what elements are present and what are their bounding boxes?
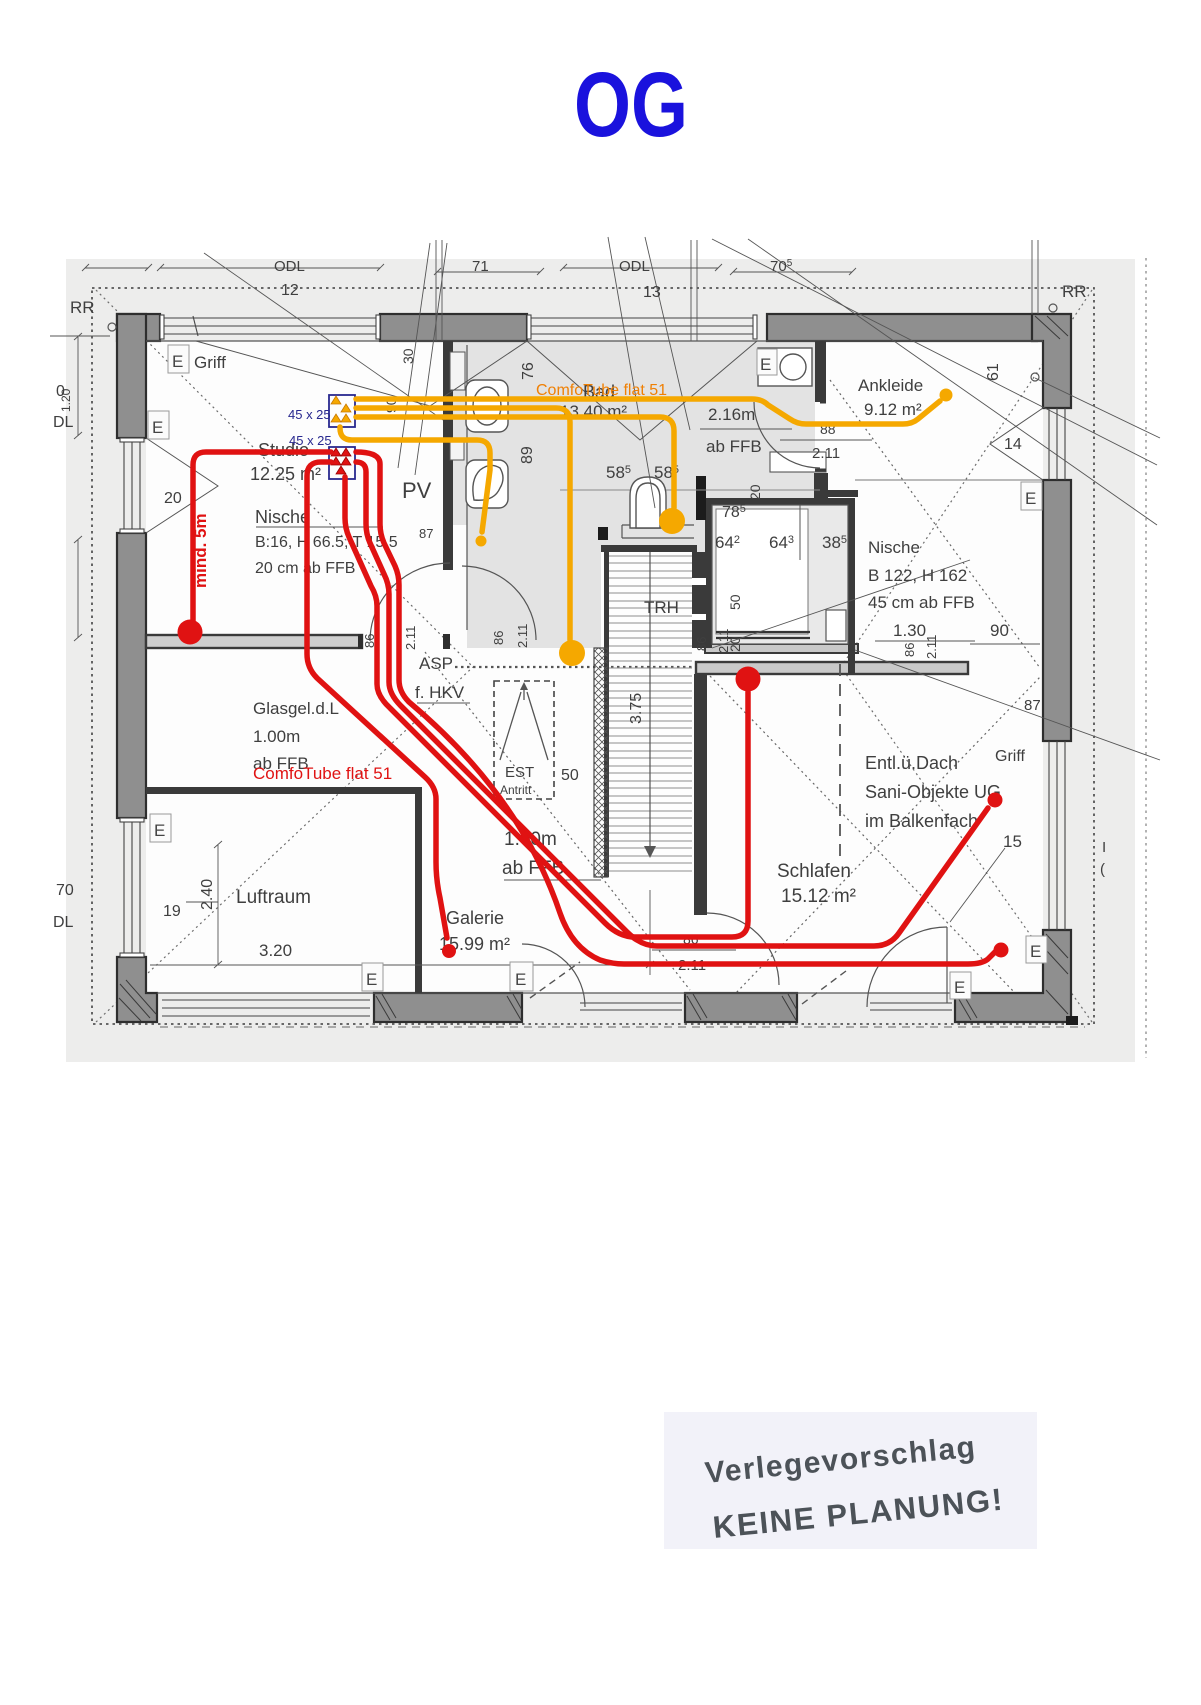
svg-text:50: 50 — [727, 594, 743, 610]
svg-text:30: 30 — [400, 348, 416, 364]
svg-text:15.12 m²: 15.12 m² — [781, 886, 856, 907]
svg-text:12: 12 — [281, 282, 299, 299]
svg-text:E: E — [366, 970, 377, 989]
svg-text:Antritt: Antritt — [500, 783, 532, 797]
svg-text:45 x 25: 45 x 25 — [289, 433, 332, 448]
svg-text:E: E — [760, 355, 771, 374]
svg-text:ComfoTube flat 51: ComfoTube flat 51 — [536, 382, 667, 399]
svg-text:OG: OG — [574, 54, 688, 156]
svg-text:1.30: 1.30 — [893, 621, 926, 640]
svg-text:RR: RR — [70, 298, 95, 317]
svg-text:Griff: Griff — [995, 748, 1025, 765]
svg-text:2.11: 2.11 — [812, 445, 840, 462]
svg-text:E: E — [1025, 489, 1036, 508]
svg-text:19: 19 — [163, 903, 181, 920]
svg-text:DL: DL — [53, 914, 74, 931]
svg-text:3.20: 3.20 — [259, 941, 292, 960]
svg-text:13: 13 — [643, 284, 661, 301]
svg-text:20: 20 — [727, 636, 743, 652]
svg-text:TRH: TRH — [644, 598, 679, 617]
svg-text:20: 20 — [164, 490, 182, 507]
svg-text:14: 14 — [1004, 436, 1022, 453]
svg-text:86: 86 — [902, 643, 917, 657]
svg-text:DL: DL — [53, 414, 74, 431]
svg-text:71: 71 — [472, 258, 489, 275]
svg-text:E: E — [515, 970, 526, 989]
svg-text:E: E — [172, 352, 183, 371]
svg-text:B 122, H 162: B 122, H 162 — [868, 566, 967, 585]
svg-text:Sani-Objekte UG: Sani-Objekte UG — [865, 782, 1001, 802]
svg-text:(: ( — [1100, 861, 1105, 878]
svg-text:Nische: Nische — [868, 538, 920, 557]
svg-text:3.75: 3.75 — [628, 693, 645, 724]
svg-text:61: 61 — [985, 363, 1002, 381]
svg-text:Griff: Griff — [194, 353, 226, 372]
svg-text:Luftraum: Luftraum — [236, 887, 311, 908]
svg-text:86: 86 — [694, 637, 709, 651]
svg-text:Schlafen: Schlafen — [777, 861, 851, 882]
svg-text:Ankleide: Ankleide — [858, 376, 923, 395]
svg-text:2.40: 2.40 — [199, 879, 216, 910]
svg-text:Glasgel.d.L: Glasgel.d.L — [253, 699, 339, 718]
svg-text:45 x 25: 45 x 25 — [288, 407, 331, 422]
svg-text:ComfoTube flat 51: ComfoTube flat 51 — [253, 764, 392, 783]
svg-text:im Balkenfach: im Balkenfach — [865, 811, 978, 831]
svg-text:mind. 5m: mind. 5m — [191, 513, 210, 588]
svg-text:86: 86 — [491, 631, 506, 645]
svg-text:Nische: Nische — [255, 507, 310, 527]
svg-text:EST: EST — [505, 764, 534, 781]
svg-text:I: I — [1102, 839, 1106, 856]
svg-text:90: 90 — [990, 621, 1009, 640]
svg-text:2.11: 2.11 — [403, 626, 418, 650]
svg-text:45 cm ab FFB: 45 cm ab FFB — [868, 593, 975, 612]
svg-text:RR: RR — [1062, 282, 1087, 301]
svg-text:Galerie: Galerie — [446, 908, 504, 928]
svg-text:9.12 m²: 9.12 m² — [864, 400, 922, 419]
svg-text:87: 87 — [1024, 697, 1041, 714]
svg-text:20: 20 — [747, 484, 763, 500]
svg-text:89: 89 — [519, 446, 536, 464]
svg-text:E: E — [1030, 942, 1041, 961]
svg-text:Entl.ü.Dach: Entl.ü.Dach — [865, 753, 958, 773]
svg-text:2.11: 2.11 — [924, 635, 939, 659]
svg-text:87: 87 — [419, 526, 433, 541]
svg-text:B:16, H 66.5, T 15.5: B:16, H 66.5, T 15.5 — [255, 534, 398, 551]
svg-text:PV: PV — [402, 478, 432, 503]
svg-text:E: E — [954, 978, 965, 997]
svg-text:ODL: ODL — [274, 258, 305, 275]
svg-text:2.11: 2.11 — [515, 624, 530, 648]
svg-text:1.20: 1.20 — [59, 388, 73, 412]
svg-text:ODL: ODL — [619, 258, 650, 275]
svg-text:76: 76 — [520, 362, 537, 380]
svg-text:1.00m: 1.00m — [253, 727, 300, 746]
svg-text:ASP: ASP — [419, 654, 453, 673]
svg-text:50: 50 — [561, 767, 579, 784]
svg-text:f. HKV: f. HKV — [415, 683, 465, 702]
svg-text:2.16m: 2.16m — [708, 405, 755, 424]
svg-text:E: E — [152, 418, 163, 437]
svg-text:E: E — [154, 821, 165, 840]
svg-text:ab FFB: ab FFB — [706, 437, 762, 456]
svg-text:70: 70 — [56, 882, 74, 899]
svg-text:15: 15 — [1003, 832, 1022, 851]
